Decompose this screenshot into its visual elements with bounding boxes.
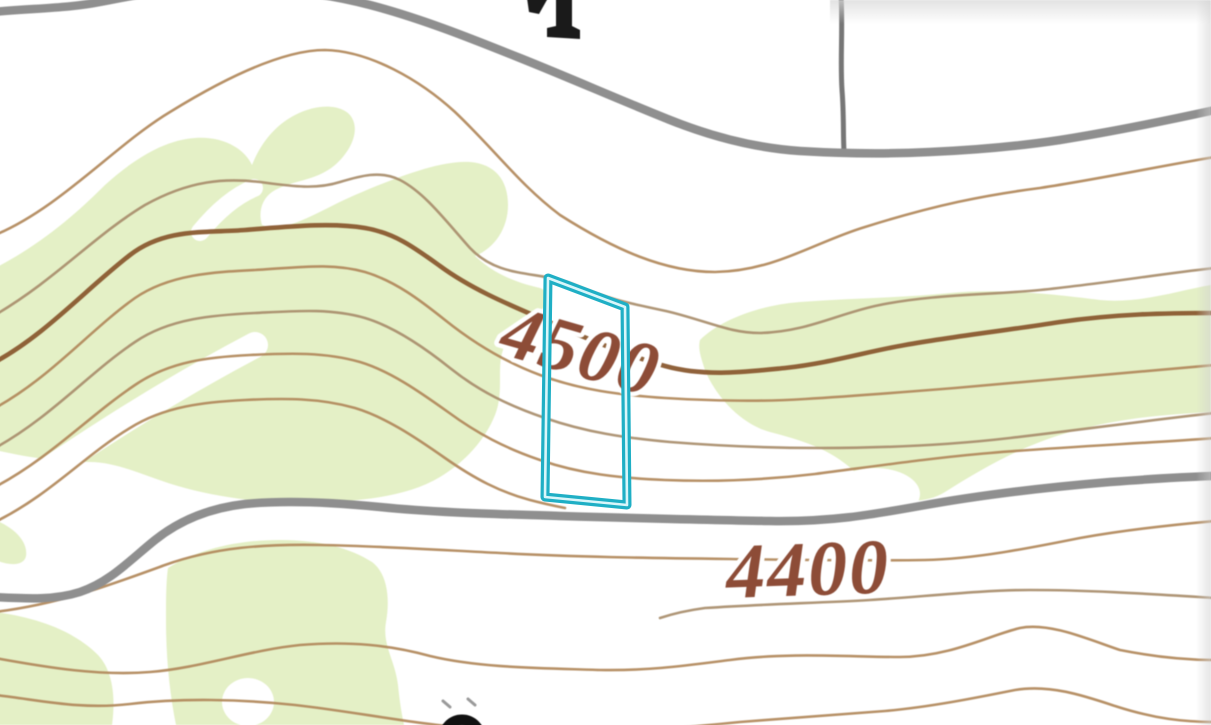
map-image[interactable]: 4500 4400 xyxy=(0,0,1211,725)
map-viewport[interactable]: 4500 4400 xyxy=(0,0,1211,725)
edge-shading-top xyxy=(830,0,1211,24)
vegetation-patch-bottom-center xyxy=(166,540,404,725)
cutoff-digit-ring xyxy=(444,720,480,725)
elevation-label-4400: 4400 xyxy=(723,522,892,615)
edge-shading-right xyxy=(1196,0,1211,725)
